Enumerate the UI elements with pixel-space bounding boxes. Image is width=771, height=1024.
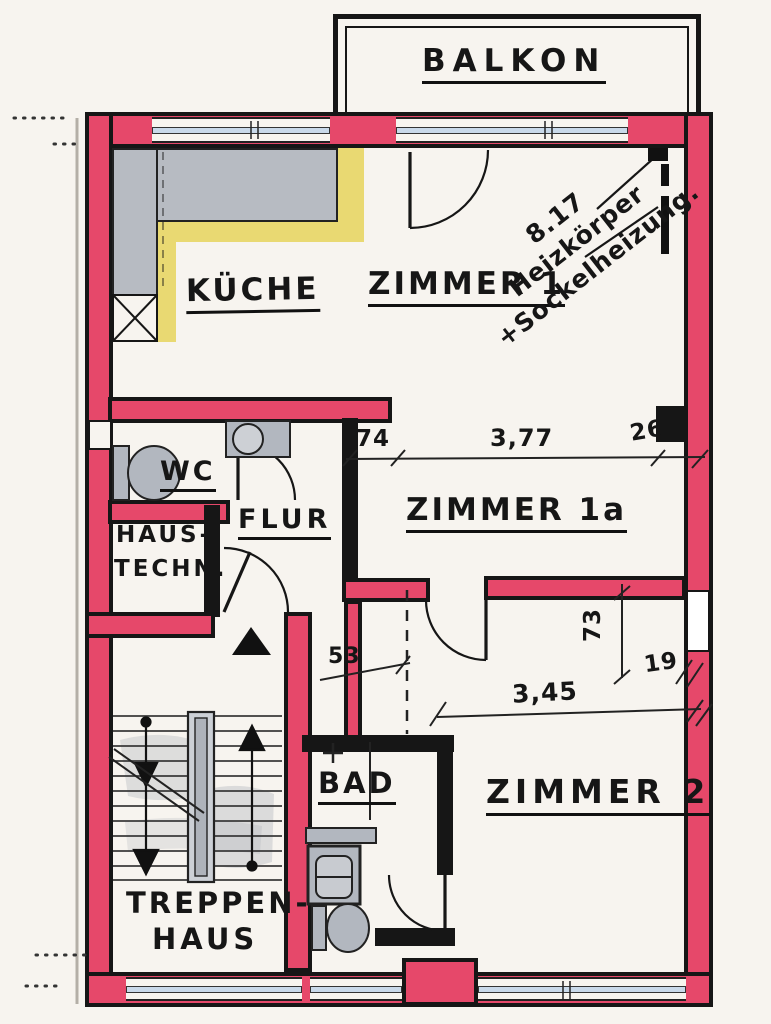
wall-bottom-pier [402,958,478,1006]
wall-bad-lower [375,928,455,946]
dim-53: 53 [328,644,361,669]
kueche-label: KÜCHE [186,271,320,314]
stair-down-arrow [134,718,158,875]
wc-label: WC [160,456,216,492]
window-glass [478,986,686,993]
zimmer2-label: ZIMMER 2 [486,772,710,816]
wall-right [684,112,713,1007]
wall-bad-right [437,735,453,875]
niche-wc-left-wall [88,420,112,450]
construction-dotted-lines [14,118,90,986]
window-glass [152,127,330,134]
window-kueche [152,117,330,143]
dim-74: 74 [356,426,390,452]
window-glass [396,127,628,134]
haustechnik-label-line2: TECHN. [114,556,228,582]
flur-label: FLUR [238,504,331,540]
balcony-outline: BALKON [333,14,701,120]
entry-arrow [232,627,271,655]
kitchen-counter-yellow-bottom [158,222,338,242]
window-zimmer1-balcony [396,117,628,143]
kitchen-sink-xbox [112,294,158,342]
treppenhaus-label-line2: HAUS [152,922,258,956]
haustechnik-label-line1: HAUS- [116,522,212,548]
wall-left [85,112,113,1007]
wall-zimmer1a-zimmer2 [484,576,686,600]
zimmer1a-label: ZIMMER 1a [406,492,627,533]
dim-19: 19 [642,648,679,678]
wall-wc-door-stub [226,423,242,449]
window-glass [310,986,402,993]
window-glass [126,986,302,993]
kitchen-counter-yellow-left [158,242,176,342]
kitchen-counter-yellow-right [338,148,364,242]
window-bad [310,977,402,1001]
stairs [109,712,282,882]
wall-bad-top [302,735,454,752]
stair-up-arrow [240,726,264,871]
window-zimmer2 [478,977,686,1001]
window-treppenhaus [126,977,302,1001]
floor-plan: BALKON [0,0,771,1024]
window-niche-zimmer2-right [686,590,710,652]
dim-26: 26 [628,415,666,447]
treppenhaus-label-line1: TREPPEN- [126,886,311,920]
wall-haustechnik-bottom [85,612,215,638]
dim-73: 73 [580,608,606,642]
wall-passage-right [344,600,362,742]
dim-345: 3,45 [511,676,578,708]
wall-zimmer1a-bottom-left [342,578,430,602]
bad-label: BAD [318,766,396,805]
dim-377: 3,77 [490,424,553,452]
stair-break-line [109,749,204,821]
heating-note: 8.17 Heizkörper +Sockelheizung. [452,113,722,353]
balcony-label: BALKON [422,43,606,84]
bad-fixtures [306,828,376,952]
